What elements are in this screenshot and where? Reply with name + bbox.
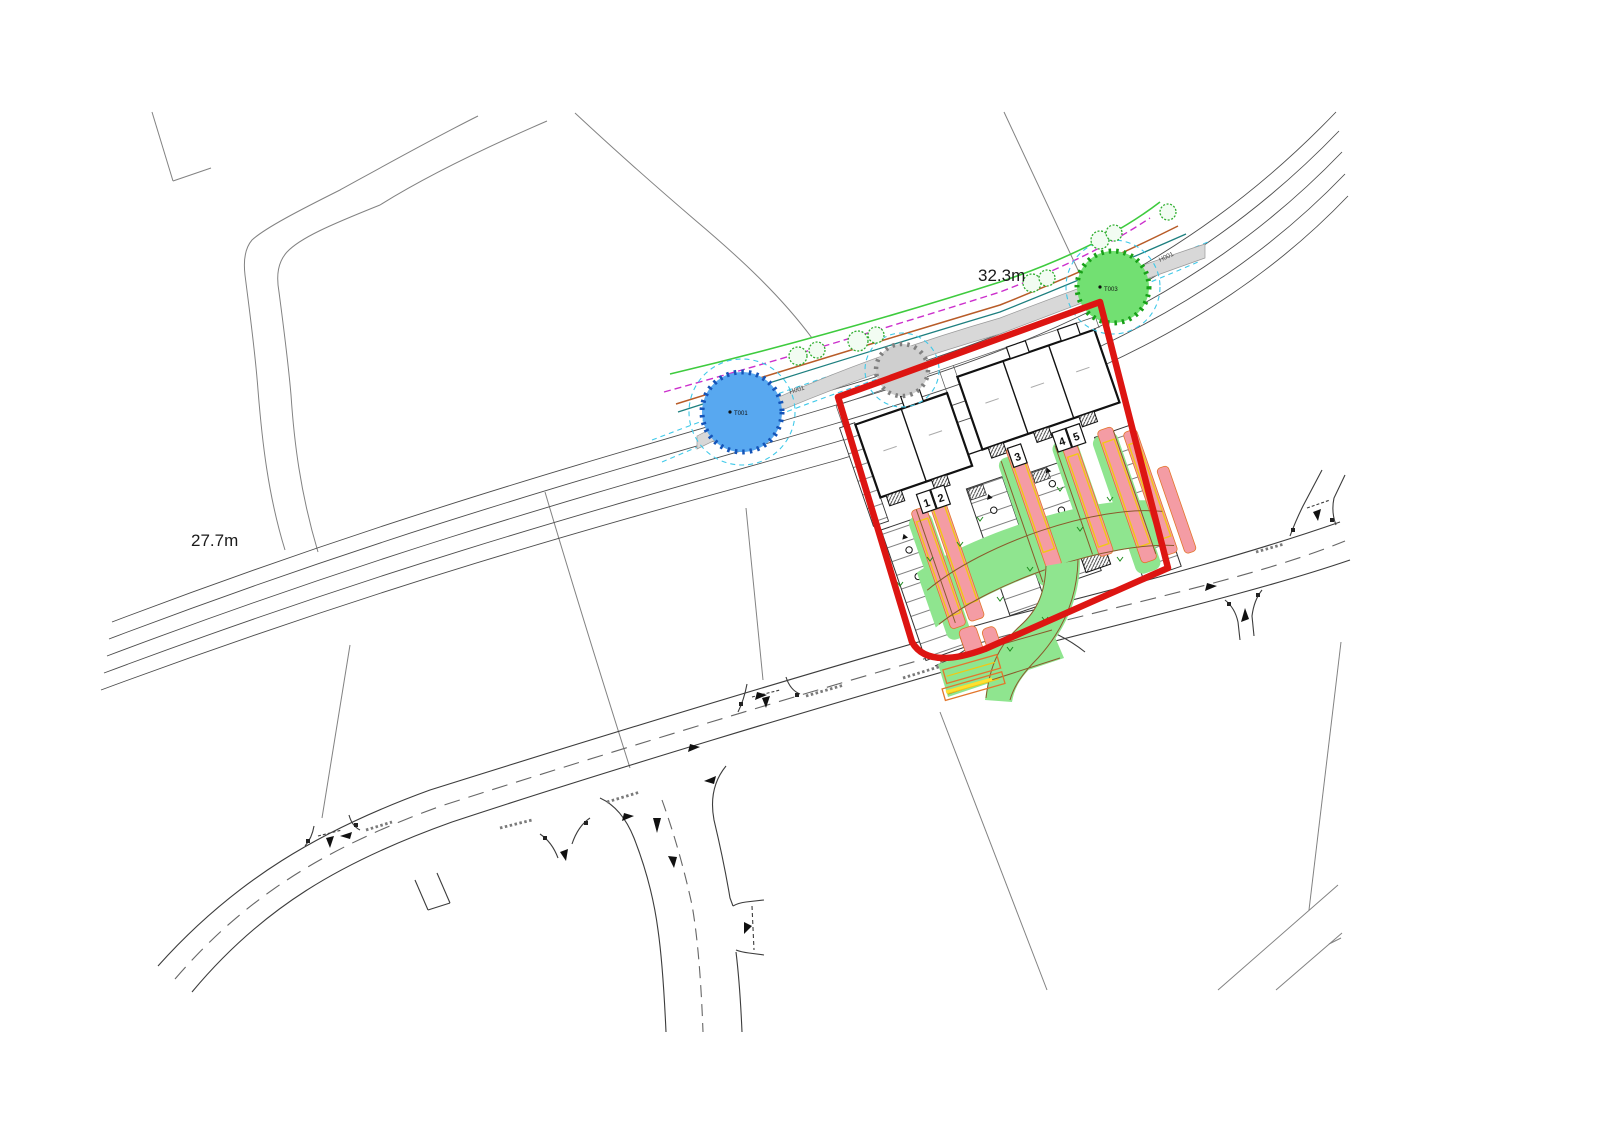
road-edge-top [158,522,1340,966]
site-plan-drawing: H001 H001 [0,0,1600,1130]
junction-stub-north-1 [738,677,800,712]
tree-t003-label: T003 [1104,287,1118,293]
road-arrows [340,583,1217,839]
road-centerline [175,541,1345,979]
tree-t001-label: T001 [734,411,748,417]
road-edge-bottom [192,560,1350,992]
dimension-upper: 32.3m [978,266,1025,285]
tree-t001: T001 [702,372,782,452]
junction-stub-north-3 [1290,470,1345,536]
junction-stub-south-3 [1225,590,1262,640]
tree-t003: T003 [1077,251,1149,323]
dimension-labels: 32.3m 27.7m [191,266,1025,550]
junction-stub-south-2 [415,873,450,910]
dimension-lower: 27.7m [191,531,238,550]
junction-stub-south-1 [540,818,590,861]
site-plan-canvas: H001 H001 [0,0,1600,1130]
side-road-south [600,766,764,1032]
kerb-hatch-strips [366,544,1284,830]
